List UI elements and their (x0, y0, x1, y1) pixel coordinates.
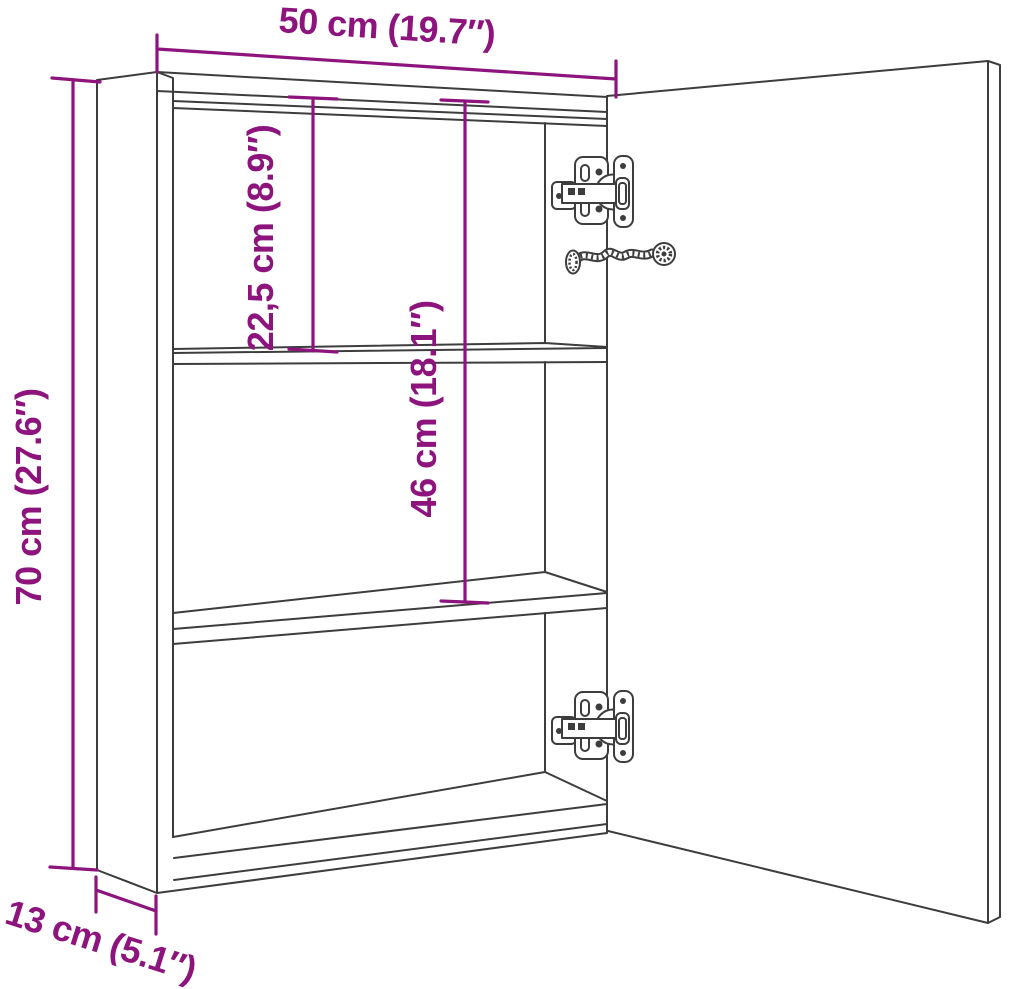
dimension-width: 50 cm (19.7″) (157, 0, 616, 97)
cabinet-top-panel-underside (157, 91, 607, 126)
cabinet-door-open (607, 61, 1000, 923)
dimension-drawing-canvas: 50 cm (19.7″) 70 cm (27.6″) 22,5 cm (8.9… (0, 0, 1020, 989)
hinge-top (552, 156, 633, 227)
power-cable (566, 243, 675, 274)
dimension-height: 70 cm (27.6″) (8, 78, 100, 870)
cabinet-interior-left-edge (157, 72, 173, 837)
dimension-shelf-opening: 46 cm (18.1″) (403, 100, 488, 603)
cabinet-body (97, 72, 607, 893)
door-outline (607, 61, 1000, 923)
hinge-bottom (552, 691, 633, 762)
shelf-lower (173, 572, 607, 644)
dimension-upper-shelf-space: 22,5 cm (8.9″) (240, 97, 337, 352)
dimension-width-label: 50 cm (19.7″) (277, 0, 496, 54)
mirror-cabinet-dimension-diagram: 50 cm (19.7″) 70 cm (27.6″) 22,5 cm (8.9… (0, 0, 1020, 989)
cabinet-bottom-panel (173, 772, 607, 880)
dimension-depth-label: 13 cm (5.1″) (1, 891, 202, 989)
dimension-upper-shelf-label: 22,5 cm (8.9″) (240, 125, 281, 351)
dimension-shelf-opening-label: 46 cm (18.1″) (403, 301, 444, 518)
dimension-depth: 13 cm (5.1″) (1, 877, 202, 989)
shelf-middle (173, 343, 607, 364)
dimension-height-label: 70 cm (27.6″) (8, 389, 49, 606)
